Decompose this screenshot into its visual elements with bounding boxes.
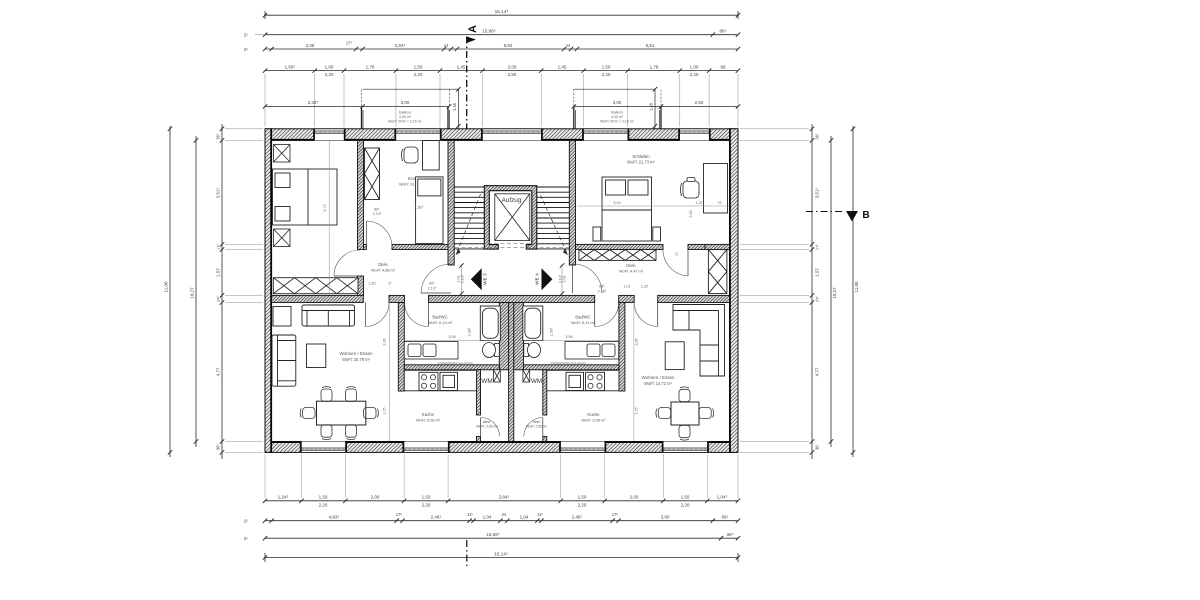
svg-text:WoFl: 14,72 m²: WoFl: 14,72 m² <box>644 381 672 386</box>
svg-text:WoFl: 4,68 m²: WoFl: 4,68 m² <box>371 268 396 273</box>
svg-text:2,63: 2,63 <box>695 100 704 105</box>
svg-text:16,14⁵: 16,14⁵ <box>495 9 509 15</box>
svg-text:2,13⁵: 2,13⁵ <box>559 274 563 283</box>
svg-text:Abst.: Abst. <box>483 420 491 424</box>
svg-text:1,45: 1,45 <box>558 64 567 69</box>
svg-text:Diele: Diele <box>626 263 636 268</box>
svg-text:1,00: 1,00 <box>325 64 334 69</box>
svg-text:2,13⁵: 2,13⁵ <box>461 274 465 283</box>
svg-text:Balkon: Balkon <box>399 111 411 115</box>
svg-text:24: 24 <box>566 43 571 48</box>
svg-text:24⁵: 24⁵ <box>217 296 221 302</box>
svg-text:WoFl: 50% = 2,15 m²: WoFl: 50% = 2,15 m² <box>388 120 423 124</box>
svg-text:2,38⁵: 2,38⁵ <box>550 327 554 336</box>
svg-text:2,20: 2,20 <box>422 502 431 507</box>
svg-text:2,20: 2,20 <box>690 72 699 77</box>
svg-text:11,00: 11,00 <box>854 281 859 292</box>
svg-text:Schlafen: Schlafen <box>632 154 650 159</box>
svg-text:24: 24 <box>444 43 449 48</box>
svg-text:11⁵: 11⁵ <box>467 512 473 517</box>
svg-text:16,14⁵: 16,14⁵ <box>494 551 508 557</box>
svg-text:2,38⁵: 2,38⁵ <box>468 327 472 336</box>
svg-text:2,20: 2,20 <box>602 72 611 77</box>
svg-text:WoFl: 2,65 m²: WoFl: 2,65 m² <box>476 425 498 429</box>
svg-text:1,01: 1,01 <box>563 275 567 282</box>
svg-text:WoFl: 4,47 m²: WoFl: 4,47 m² <box>619 269 644 274</box>
svg-text:WoFl: 21,73 m²: WoFl: 21,73 m² <box>627 160 655 165</box>
svg-text:2,50: 2,50 <box>508 72 517 77</box>
svg-text:2,20: 2,20 <box>681 502 690 507</box>
svg-text:Küche: Küche <box>422 412 435 417</box>
svg-text:2,08: 2,08 <box>306 43 315 48</box>
svg-text:3,56: 3,56 <box>448 335 455 339</box>
svg-text:2,00: 2,00 <box>371 494 380 499</box>
svg-text:A: A <box>467 25 479 33</box>
svg-text:2,13⁵: 2,13⁵ <box>373 212 382 216</box>
svg-text:WE 4: WE 4 <box>535 273 541 285</box>
svg-text:1,01: 1,01 <box>623 285 630 289</box>
svg-text:WoFl: 6,31 m²: WoFl: 6,31 m² <box>571 320 596 325</box>
svg-text:1,78: 1,78 <box>650 64 659 69</box>
svg-text:1,04: 1,04 <box>483 514 492 519</box>
svg-text:3,72: 3,72 <box>323 204 327 211</box>
svg-text:2,00: 2,00 <box>630 494 639 499</box>
svg-text:2⁵: 2⁵ <box>244 33 248 38</box>
svg-text:3,51⁵: 3,51⁵ <box>815 188 820 199</box>
svg-text:WoFl: 6,06 m²: WoFl: 6,06 m² <box>416 418 441 423</box>
svg-text:4,30 m²: 4,30 m² <box>399 115 412 119</box>
svg-text:3,51⁵: 3,51⁵ <box>216 188 221 199</box>
svg-text:17⁵: 17⁵ <box>396 512 403 517</box>
svg-text:3,00: 3,00 <box>613 100 622 105</box>
svg-text:36⁵: 36⁵ <box>815 444 820 451</box>
svg-text:86⁵: 86⁵ <box>722 514 729 519</box>
svg-text:4,83⁵: 4,83⁵ <box>329 514 340 519</box>
svg-text:1,50: 1,50 <box>414 64 423 69</box>
svg-text:Bad/WC: Bad/WC <box>432 315 447 320</box>
svg-text:WoFl: 6,13 m²: WoFl: 6,13 m² <box>428 320 453 325</box>
svg-text:1,04⁵: 1,04⁵ <box>717 494 728 499</box>
svg-text:2⁵: 2⁵ <box>244 519 248 524</box>
svg-text:99: 99 <box>720 64 726 69</box>
svg-text:Aufzug: Aufzug <box>502 197 522 204</box>
svg-text:5,26: 5,26 <box>689 210 693 217</box>
svg-text:2,84⁵: 2,84⁵ <box>395 43 406 48</box>
svg-text:WM: WM <box>531 378 542 385</box>
svg-text:1,75: 1,75 <box>383 407 387 414</box>
svg-text:2,20: 2,20 <box>319 502 328 507</box>
svg-text:1,20: 1,20 <box>641 285 648 289</box>
svg-text:1,57: 1,57 <box>815 268 820 277</box>
svg-text:2,46⁵: 2,46⁵ <box>431 514 442 519</box>
svg-text:10,27: 10,27 <box>832 287 837 299</box>
svg-text:11,00: 11,00 <box>164 281 169 292</box>
svg-text:1,69⁵: 1,69⁵ <box>285 64 296 69</box>
svg-text:5,51: 5,51 <box>646 43 655 48</box>
svg-text:4,30 m²: 4,30 m² <box>611 115 624 119</box>
svg-text:1,04: 1,04 <box>520 514 529 519</box>
svg-text:1,75: 1,75 <box>635 407 639 414</box>
svg-text:3,84⁵: 3,84⁵ <box>499 494 510 499</box>
svg-text:4,77: 4,77 <box>815 367 820 376</box>
svg-text:36⁵: 36⁵ <box>815 133 820 140</box>
svg-text:1,20: 1,20 <box>368 282 375 286</box>
svg-text:Diele: Diele <box>378 262 388 267</box>
svg-text:1,45: 1,45 <box>457 64 466 69</box>
svg-text:24: 24 <box>502 512 507 517</box>
svg-text:WE 3: WE 3 <box>483 273 489 285</box>
svg-text:2,20: 2,20 <box>578 502 587 507</box>
svg-text:Küche: Küche <box>587 412 600 417</box>
svg-text:75: 75 <box>717 201 721 205</box>
svg-text:1,57: 1,57 <box>216 268 221 277</box>
svg-text:1,48: 1,48 <box>452 102 457 111</box>
svg-text:36⁵: 36⁵ <box>216 133 221 140</box>
svg-text:Wohnen / Essen: Wohnen / Essen <box>339 351 373 356</box>
svg-text:11⁵: 11⁵ <box>537 512 543 517</box>
svg-text:1,50: 1,50 <box>422 494 431 499</box>
svg-text:1,50: 1,50 <box>602 64 611 69</box>
svg-text:VORWANDINSTALLATION: VORWANDINSTALLATION <box>550 361 586 365</box>
svg-text:WoFl: 50% = 2,15 m²: WoFl: 50% = 2,15 m² <box>600 120 635 124</box>
svg-text:1,24⁵: 1,24⁵ <box>278 494 289 499</box>
svg-text:1,82⁵: 1,82⁵ <box>415 206 424 210</box>
svg-text:88⁵: 88⁵ <box>374 207 380 211</box>
svg-text:17⁵: 17⁵ <box>816 244 820 250</box>
svg-text:9,84: 9,84 <box>504 43 513 48</box>
svg-text:2,20: 2,20 <box>414 72 423 77</box>
svg-text:3,02: 3,02 <box>613 201 620 205</box>
svg-text:2,18⁵: 2,18⁵ <box>598 290 607 294</box>
svg-text:86⁵: 86⁵ <box>720 29 727 34</box>
svg-text:3,56: 3,56 <box>565 335 572 339</box>
svg-text:17⁵: 17⁵ <box>217 244 221 250</box>
svg-text:3,36: 3,36 <box>635 338 639 345</box>
svg-text:88⁵: 88⁵ <box>599 285 605 289</box>
svg-text:B: B <box>862 210 869 221</box>
svg-text:1,00: 1,00 <box>690 64 699 69</box>
svg-text:10,27: 10,27 <box>190 287 195 299</box>
svg-text:1,48: 1,48 <box>649 102 654 111</box>
svg-text:86⁵: 86⁵ <box>429 282 435 286</box>
svg-text:1,50: 1,50 <box>681 494 690 499</box>
svg-text:WoFl: 20,78 m²: WoFl: 20,78 m² <box>342 357 370 362</box>
svg-text:1,78: 1,78 <box>366 64 375 69</box>
svg-text:2,20: 2,20 <box>325 72 334 77</box>
svg-text:17⁵: 17⁵ <box>612 512 619 517</box>
svg-text:15,86⁵: 15,86⁵ <box>482 29 495 34</box>
svg-text:1,50: 1,50 <box>578 494 587 499</box>
svg-text:36⁵: 36⁵ <box>216 444 221 451</box>
svg-text:71: 71 <box>675 252 679 256</box>
svg-text:1,37⁵: 1,37⁵ <box>696 201 705 205</box>
svg-text:1,50: 1,50 <box>319 494 328 499</box>
svg-text:2,46⁵: 2,46⁵ <box>572 514 583 519</box>
svg-text:Abst.: Abst. <box>532 420 540 424</box>
svg-text:4,77: 4,77 <box>216 367 221 376</box>
svg-text:2⁵: 2⁵ <box>244 536 248 541</box>
svg-text:24⁵: 24⁵ <box>816 296 820 302</box>
svg-text:17⁵: 17⁵ <box>346 41 353 46</box>
svg-text:Balkon: Balkon <box>611 111 623 115</box>
svg-text:15,56⁵: 15,56⁵ <box>486 532 499 537</box>
svg-text:3,36: 3,36 <box>383 338 387 345</box>
svg-text:VORWANDINSTALLATION: VORWANDINSTALLATION <box>437 361 473 365</box>
svg-text:2,13⁵: 2,13⁵ <box>428 287 437 291</box>
svg-text:2⁵: 2⁵ <box>244 47 248 52</box>
svg-text:3,00: 3,00 <box>401 100 410 105</box>
svg-text:2,00: 2,00 <box>508 64 517 69</box>
svg-text:WM: WM <box>481 378 492 385</box>
svg-text:3,90: 3,90 <box>661 514 670 519</box>
svg-text:36⁵: 36⁵ <box>727 532 734 537</box>
svg-text:WoFl: 2,56 m²: WoFl: 2,56 m² <box>526 425 548 429</box>
svg-text:3,33⁵: 3,33⁵ <box>308 100 319 105</box>
svg-text:Wohnen / Essen: Wohnen / Essen <box>641 375 675 380</box>
svg-text:WoFl: 6,06 m²: WoFl: 6,06 m² <box>582 418 607 423</box>
svg-text:Bad/WC: Bad/WC <box>575 315 590 320</box>
svg-text:15: 15 <box>358 207 362 211</box>
